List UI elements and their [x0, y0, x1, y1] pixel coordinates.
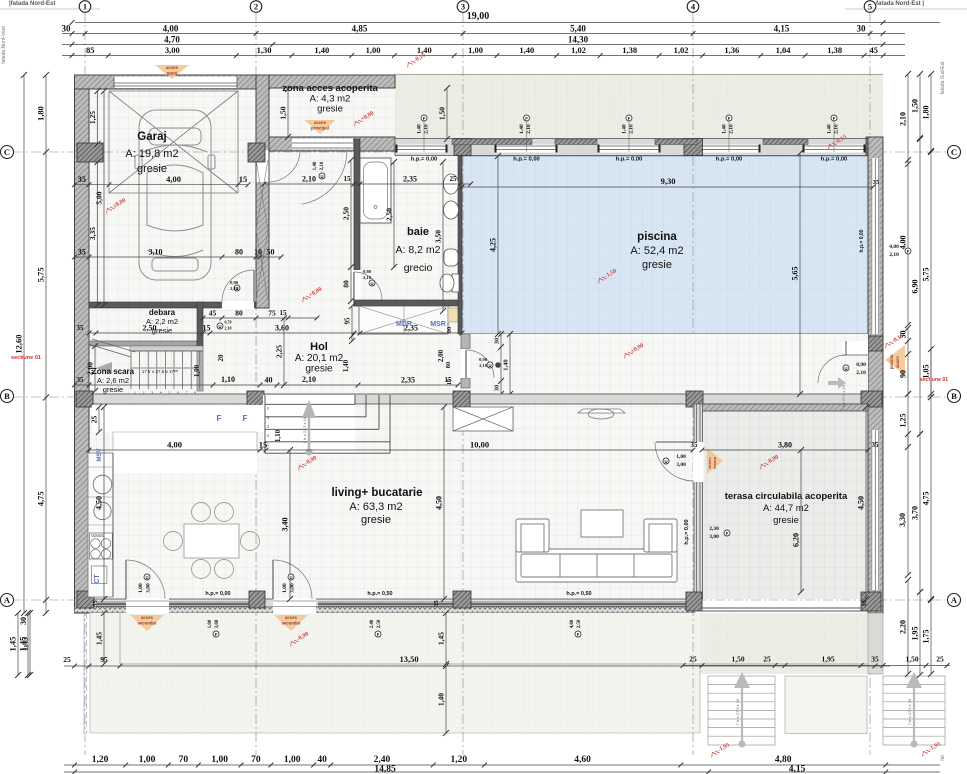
- svg-text:3: 3: [461, 1, 465, 11]
- svg-text:1,04: 1,04: [776, 45, 792, 55]
- svg-text:4,60: 4,60: [570, 619, 575, 628]
- svg-text:1,40: 1,40: [722, 124, 728, 134]
- svg-text:gresie: gresie: [103, 385, 123, 394]
- svg-text:19,00: 19,00: [467, 11, 490, 22]
- svg-text:85: 85: [86, 45, 95, 55]
- svg-text:2,50: 2,50: [342, 207, 351, 220]
- svg-text:F: F: [525, 116, 528, 121]
- svg-text:h.p.= 0,00: h.p.= 0,00: [821, 157, 848, 163]
- svg-text:2,10: 2,10: [729, 124, 735, 134]
- svg-text:F: F: [833, 116, 836, 121]
- svg-text:h.p.= 0,50: h.p.= 0,50: [367, 591, 392, 597]
- svg-text:25: 25: [90, 416, 99, 424]
- svg-text:2,10: 2,10: [889, 252, 899, 258]
- svg-text:3,00: 3,00: [215, 619, 220, 628]
- svg-text:A: 2,6 m2: A: 2,6 m2: [97, 376, 129, 385]
- svg-text:F: F: [423, 116, 426, 121]
- svg-text:fat: fat: [940, 755, 946, 761]
- svg-text:2,10: 2,10: [230, 286, 239, 291]
- svg-text:5: 5: [169, 391, 171, 395]
- svg-text:35: 35: [691, 441, 699, 449]
- svg-text:U: U: [218, 324, 221, 329]
- svg-text:Hol: Hol: [310, 341, 328, 353]
- svg-text:1,45: 1,45: [8, 637, 18, 652]
- svg-text:30: 30: [494, 338, 501, 345]
- svg-text:6: 6: [177, 391, 179, 395]
- svg-text:acces: acces: [314, 120, 327, 125]
- svg-text:2,30: 2,30: [709, 526, 719, 532]
- svg-text:A: A: [4, 595, 11, 605]
- svg-text:gresie: gresie: [137, 163, 167, 175]
- svg-text:3,30: 3,30: [898, 513, 907, 527]
- svg-text:Zona scara: Zona scara: [92, 367, 135, 376]
- svg-text:6,90: 6,90: [911, 280, 920, 294]
- svg-text:1,40: 1,40: [827, 124, 833, 134]
- svg-text:2,00: 2,00: [86, 362, 95, 375]
- svg-text:40: 40: [265, 376, 273, 385]
- svg-text:4,25: 4,25: [489, 238, 498, 252]
- svg-text:1,40: 1,40: [437, 693, 446, 706]
- svg-text:h.p.= 0,00: h.p.= 0,00: [616, 157, 643, 163]
- svg-text:U: U: [289, 575, 292, 580]
- svg-text:gresie: gresie: [642, 259, 672, 271]
- svg-text:gresie: gresie: [773, 515, 799, 526]
- svg-text:1: 1: [267, 442, 269, 447]
- svg-text:3,00: 3,00: [676, 462, 686, 468]
- svg-text:13,50: 13,50: [399, 654, 418, 664]
- svg-text:4,15: 4,15: [774, 24, 790, 34]
- svg-text:debara: debara: [149, 308, 176, 317]
- svg-text:2,25: 2,25: [275, 345, 284, 358]
- svg-text:35: 35: [861, 600, 868, 607]
- svg-text:30: 30: [494, 385, 501, 392]
- svg-text:35: 35: [78, 248, 86, 257]
- svg-text:3,00: 3,00: [146, 583, 152, 593]
- svg-text:h.p.= 0,00: h.p.= 0,00: [411, 157, 438, 163]
- svg-text:F: F: [243, 414, 248, 423]
- svg-text:secundar: secundar: [281, 621, 300, 626]
- svg-text:2,10: 2,10: [856, 370, 866, 376]
- svg-text:1,36: 1,36: [724, 45, 739, 55]
- svg-text:MSR: MSR: [430, 321, 446, 328]
- svg-text:3: 3: [151, 391, 153, 395]
- svg-text:1: 1: [134, 391, 136, 395]
- svg-text:90: 90: [446, 327, 453, 334]
- svg-text:living+ bucatarie: living+ bucatarie: [331, 487, 422, 499]
- svg-text:C: C: [951, 147, 957, 157]
- svg-text:piscina: piscina: [637, 231, 677, 243]
- svg-text:2,20: 2,20: [899, 620, 908, 634]
- svg-text:6,20: 6,20: [792, 533, 801, 547]
- svg-text:2,50: 2,50: [377, 619, 382, 628]
- svg-text:1,00: 1,00: [208, 619, 213, 628]
- svg-text:h.p.= 0,00: h.p.= 0,00: [205, 591, 230, 597]
- svg-text:1,40: 1,40: [342, 359, 350, 372]
- svg-text:30: 30: [19, 617, 28, 625]
- svg-text:20: 20: [217, 354, 225, 362]
- svg-text:2,10: 2,10: [899, 112, 908, 126]
- svg-text:10: 10: [254, 248, 262, 257]
- svg-text:35: 35: [871, 655, 879, 664]
- svg-text:principal: principal: [311, 126, 329, 131]
- svg-text:5,75: 5,75: [36, 267, 46, 282]
- svg-text:garaj: garaj: [167, 71, 177, 76]
- svg-text:1,00: 1,00: [366, 45, 381, 55]
- svg-text:15: 15: [344, 175, 352, 183]
- svg-text:3,00: 3,00: [165, 45, 180, 55]
- svg-text:1,95: 1,95: [911, 627, 920, 641]
- svg-text:acces: acces: [141, 615, 154, 620]
- svg-text:1,25: 1,25: [899, 414, 908, 428]
- svg-text:A: 19,8 m2: A: 19,8 m2: [125, 148, 178, 160]
- svg-text:acces: acces: [895, 356, 900, 368]
- svg-text:1,02: 1,02: [674, 45, 689, 55]
- svg-text:fatada Sud-Est: fatada Sud-Est: [940, 61, 946, 95]
- svg-text:U: U: [488, 363, 491, 368]
- svg-text:2,35: 2,35: [401, 376, 415, 385]
- svg-text:MSV: MSV: [97, 448, 103, 461]
- svg-text:1,20: 1,20: [92, 755, 109, 765]
- svg-text:4,00: 4,00: [163, 24, 179, 34]
- svg-text:40: 40: [317, 755, 327, 765]
- svg-text:1,00: 1,00: [676, 454, 686, 460]
- svg-text:U: U: [844, 366, 847, 371]
- svg-text:7 tr x 27,5 x 16: 7 tr x 27,5 x 16: [842, 385, 846, 410]
- svg-text:|fatada Nord-Est: |fatada Nord-Est: [9, 1, 55, 7]
- svg-text:70: 70: [251, 755, 261, 765]
- svg-text:80: 80: [342, 280, 351, 288]
- svg-text:30: 30: [62, 24, 72, 34]
- svg-text:F: F: [577, 632, 580, 637]
- svg-text:piscina: piscina: [889, 354, 894, 369]
- svg-text:3,60: 3,60: [275, 324, 289, 333]
- svg-text:terasa: terasa: [712, 456, 717, 469]
- svg-text:2,10: 2,10: [302, 175, 316, 184]
- svg-text:1,75: 1,75: [922, 630, 931, 644]
- svg-text:5,65: 5,65: [791, 267, 800, 281]
- svg-text:F: F: [728, 116, 731, 121]
- svg-text:3,00: 3,00: [709, 534, 719, 540]
- svg-text:2,50: 2,50: [385, 208, 394, 221]
- svg-text:F: F: [377, 632, 380, 637]
- svg-text:15: 15: [239, 174, 248, 184]
- svg-text:MDR: MDR: [396, 321, 412, 328]
- svg-text:2,10: 2,10: [320, 161, 325, 170]
- svg-text:1,50: 1,50: [911, 99, 920, 113]
- svg-text:12,60: 12,60: [14, 334, 24, 353]
- svg-text:B: B: [951, 391, 957, 401]
- svg-text:4: 4: [160, 391, 162, 395]
- svg-text:A: 8,2 m2: A: 8,2 m2: [396, 244, 441, 256]
- svg-text:A: 44,7 m2: A: 44,7 m2: [763, 503, 809, 514]
- svg-text:1,25: 1,25: [88, 111, 97, 124]
- svg-text:0,90: 0,90: [479, 357, 488, 362]
- svg-text:1,50: 1,50: [279, 106, 288, 119]
- svg-text:1,00: 1,00: [468, 45, 483, 55]
- svg-text:1,50: 1,50: [438, 107, 447, 120]
- svg-text:9,30: 9,30: [661, 176, 676, 186]
- svg-text:U: U: [370, 281, 373, 286]
- svg-text:1,80: 1,80: [36, 106, 46, 121]
- svg-text:1,10: 1,10: [274, 429, 282, 442]
- svg-text:0,79: 0,79: [225, 320, 232, 325]
- svg-text:1,10: 1,10: [221, 375, 235, 384]
- svg-text:sectiune 01: sectiune 01: [11, 355, 41, 361]
- svg-text:5 tr x 27,5 x 16: 5 tr x 27,5 x 16: [302, 416, 307, 443]
- svg-text:2,10: 2,10: [479, 363, 488, 368]
- svg-text:5: 5: [868, 1, 872, 11]
- svg-text:2,35: 2,35: [403, 175, 417, 184]
- svg-text:3,70: 3,70: [911, 506, 920, 520]
- svg-text:2,10: 2,10: [834, 124, 840, 134]
- svg-text:grecio: grecio: [404, 262, 433, 274]
- svg-text:4,60: 4,60: [574, 755, 591, 765]
- svg-text:h.p.= 0,00: h.p.= 0,00: [513, 157, 540, 163]
- svg-text:3: 3: [267, 424, 269, 429]
- svg-text:1,00: 1,00: [282, 583, 288, 593]
- svg-text:70: 70: [179, 755, 189, 765]
- svg-text:7 tr x 27,5 x 16: 7 tr x 27,5 x 16: [735, 698, 740, 725]
- svg-text:2,50: 2,50: [577, 619, 582, 628]
- svg-text:25: 25: [936, 655, 944, 664]
- svg-text:35: 35: [92, 600, 99, 607]
- svg-text:50: 50: [267, 248, 275, 257]
- svg-text:1,00: 1,00: [138, 583, 144, 593]
- svg-text:4,75: 4,75: [922, 492, 931, 506]
- svg-text:0,90: 0,90: [856, 362, 866, 368]
- svg-text:25: 25: [450, 175, 458, 183]
- svg-text:30: 30: [857, 24, 867, 34]
- svg-text:U: U: [664, 459, 667, 464]
- svg-text:15: 15: [259, 440, 268, 450]
- svg-text:1,02: 1,02: [571, 45, 586, 55]
- svg-text:3,40: 3,40: [281, 518, 290, 532]
- svg-text:3,35: 3,35: [88, 227, 97, 240]
- svg-text:1,20: 1,20: [450, 755, 467, 765]
- svg-text:35: 35: [872, 441, 880, 449]
- svg-text:4,50: 4,50: [435, 496, 444, 510]
- svg-text:4,50: 4,50: [857, 496, 866, 510]
- svg-text:8: 8: [194, 391, 196, 395]
- svg-text:75: 75: [268, 309, 276, 318]
- svg-text:2,40: 2,40: [374, 755, 391, 765]
- svg-text:4,80: 4,80: [775, 755, 792, 765]
- svg-text:Garaj: Garaj: [137, 131, 166, 143]
- svg-text:4,85: 4,85: [352, 24, 368, 34]
- svg-text:5,00: 5,00: [95, 191, 104, 204]
- svg-text:gresie: gresie: [317, 104, 343, 115]
- svg-text:25: 25: [689, 655, 697, 664]
- svg-text:3,80: 3,80: [778, 441, 792, 450]
- svg-text:1,50: 1,50: [905, 655, 918, 664]
- svg-text:C: C: [4, 147, 10, 157]
- svg-text:fatada Nord-Est |: fatada Nord-Est |: [876, 1, 924, 7]
- svg-text:1,50: 1,50: [731, 655, 744, 664]
- svg-text:A: 52,4 m2: A: 52,4 m2: [630, 245, 683, 257]
- svg-text:2,10: 2,10: [526, 124, 532, 134]
- svg-text:baie: baie: [407, 226, 429, 238]
- svg-text:3,10: 3,10: [149, 248, 163, 257]
- svg-text:A: A: [951, 595, 958, 605]
- svg-text:14,85: 14,85: [374, 765, 396, 774]
- svg-text:2: 2: [267, 433, 269, 438]
- svg-text:15: 15: [203, 324, 211, 333]
- svg-text:2,50: 2,50: [143, 324, 157, 333]
- svg-text:acces: acces: [285, 615, 298, 620]
- svg-text:1,00: 1,00: [284, 755, 301, 765]
- svg-text:4,00: 4,00: [167, 440, 182, 450]
- svg-text:1,80: 1,80: [922, 106, 931, 120]
- svg-text:4,70: 4,70: [164, 35, 180, 45]
- svg-text:1,40: 1,40: [313, 161, 318, 170]
- svg-text:F: F: [217, 414, 222, 423]
- svg-text:4: 4: [267, 415, 269, 420]
- svg-text:2,10: 2,10: [363, 275, 372, 280]
- svg-text:1,40: 1,40: [519, 45, 534, 55]
- svg-text:17 tr x 27,5 x 17ᶜᵐ: 17 tr x 27,5 x 17ᶜᵐ: [142, 369, 179, 374]
- svg-text:h.p.= 0,00: h.p.= 0,00: [684, 519, 690, 544]
- svg-text:25: 25: [63, 655, 71, 664]
- svg-text:1,38: 1,38: [622, 45, 637, 55]
- svg-text:A: 20,1 m2: A: 20,1 m2: [295, 353, 344, 364]
- svg-text:95: 95: [344, 317, 352, 325]
- svg-text:1,00: 1,00: [193, 364, 201, 377]
- svg-text:1,45: 1,45: [437, 632, 446, 645]
- svg-text:terasa circulabila acoperita: terasa circulabila acoperita: [725, 491, 848, 502]
- svg-text:2,00: 2,00: [437, 349, 445, 362]
- svg-text:fatada Nord-Vest: fatada Nord-Vest: [1, 26, 7, 64]
- svg-text:secundar: secundar: [137, 621, 156, 626]
- svg-text:7: 7: [186, 391, 188, 395]
- svg-text:1,45: 1,45: [21, 637, 30, 651]
- svg-text:1,40: 1,40: [503, 359, 510, 370]
- svg-text:80: 80: [445, 362, 452, 369]
- svg-text:5,75: 5,75: [922, 268, 931, 282]
- svg-text:2: 2: [143, 391, 145, 395]
- svg-text:5,40: 5,40: [570, 24, 586, 34]
- svg-text:F: F: [907, 249, 910, 254]
- svg-text:F: F: [726, 531, 729, 536]
- svg-text:CT: CT: [94, 574, 101, 584]
- svg-text:1,38: 1,38: [827, 45, 842, 55]
- svg-text:45: 45: [209, 309, 217, 318]
- svg-text:4,75: 4,75: [36, 491, 46, 506]
- svg-text:35: 35: [433, 600, 440, 607]
- svg-text:zona acces acoperita: zona acces acoperita: [282, 83, 378, 94]
- svg-text:U: U: [320, 174, 323, 179]
- svg-text:B: B: [4, 391, 10, 401]
- svg-text:sectiune 01: sectiune 01: [920, 377, 948, 383]
- svg-text:0,90: 0,90: [230, 280, 239, 285]
- svg-text:80: 80: [235, 248, 243, 257]
- svg-text:2,10: 2,10: [302, 375, 316, 384]
- svg-text:h.p.= 0,00: h.p.= 0,00: [716, 157, 743, 163]
- svg-text:10,00: 10,00: [470, 440, 489, 450]
- svg-text:1,00: 1,00: [211, 755, 228, 765]
- svg-text:2,40: 2,40: [370, 619, 375, 628]
- svg-text:1,40: 1,40: [622, 124, 628, 134]
- svg-text:2,10: 2,10: [225, 326, 232, 331]
- svg-text:U: U: [145, 575, 148, 580]
- svg-text:3,50: 3,50: [434, 230, 443, 243]
- svg-text:7 tr x 27,5 x 16: 7 tr x 27,5 x 16: [907, 698, 912, 725]
- svg-text:1,95: 1,95: [821, 655, 834, 664]
- svg-text:35: 35: [77, 376, 85, 384]
- svg-text:35: 35: [77, 324, 85, 332]
- svg-text:2,10: 2,10: [424, 124, 430, 134]
- svg-text:15: 15: [445, 376, 453, 384]
- svg-text:acces: acces: [166, 65, 179, 70]
- svg-text:5: 5: [267, 406, 269, 411]
- svg-text:1,40: 1,40: [519, 124, 525, 134]
- svg-text:A: 63,3 m2: A: 63,3 m2: [349, 501, 402, 513]
- svg-text:3,00: 3,00: [290, 583, 296, 593]
- svg-text:4,15: 4,15: [789, 765, 806, 774]
- svg-text:F: F: [215, 632, 218, 637]
- svg-text:1: 1: [83, 1, 87, 11]
- svg-text:35: 35: [78, 174, 87, 184]
- svg-text:gresie: gresie: [361, 514, 391, 526]
- svg-text:1,45: 1,45: [95, 632, 104, 645]
- svg-text:1,40: 1,40: [314, 45, 329, 55]
- svg-text:45: 45: [869, 45, 878, 55]
- svg-text:h.p.= 0,00: h.p.= 0,00: [859, 229, 865, 252]
- svg-text:4,50: 4,50: [95, 496, 104, 510]
- svg-text:h.p.= 0,50: h.p.= 0,50: [566, 591, 591, 597]
- svg-text:0,80: 0,80: [363, 269, 372, 274]
- svg-text:25: 25: [763, 655, 771, 664]
- svg-text:1,30: 1,30: [257, 45, 272, 55]
- svg-text:80: 80: [235, 309, 243, 318]
- svg-text:2,10: 2,10: [629, 124, 635, 134]
- svg-text:4,00: 4,00: [889, 244, 899, 250]
- svg-text:1,00: 1,00: [139, 755, 156, 765]
- svg-text:1,40: 1,40: [417, 124, 423, 134]
- svg-text:gresie: gresie: [305, 364, 333, 375]
- svg-text:90: 90: [899, 370, 908, 378]
- svg-text:2: 2: [254, 1, 258, 11]
- svg-text:4,00: 4,00: [899, 236, 908, 250]
- svg-text:4,00: 4,00: [166, 174, 181, 184]
- svg-text:14,30: 14,30: [568, 35, 589, 45]
- svg-text:35: 35: [873, 179, 880, 186]
- svg-text:F: F: [628, 116, 631, 121]
